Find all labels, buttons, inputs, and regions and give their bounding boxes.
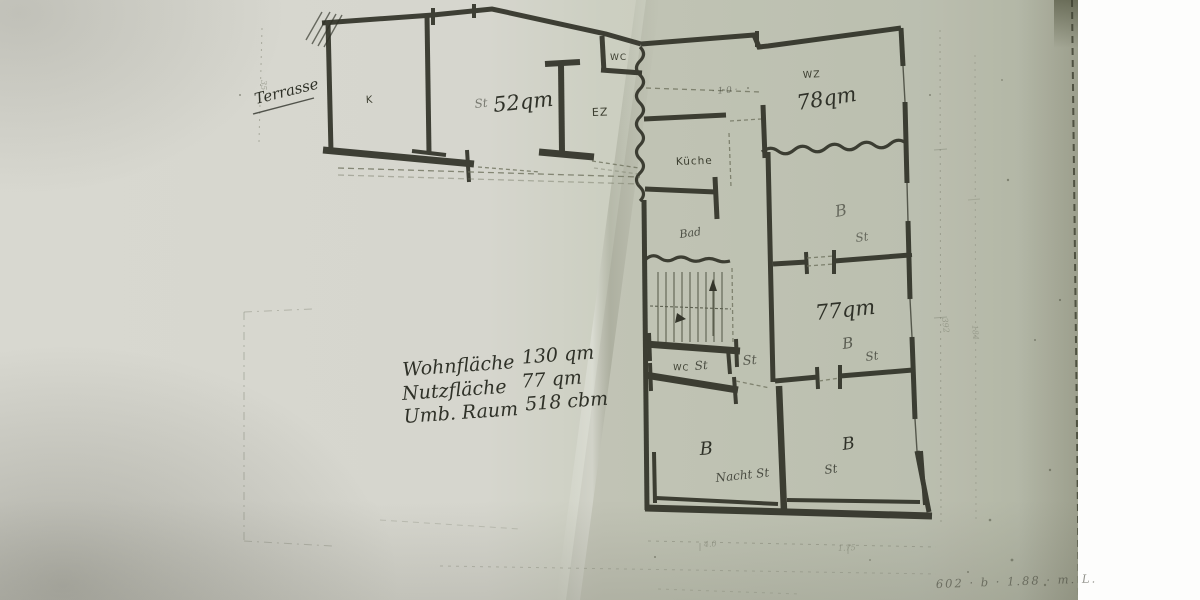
label-pencil-note: · 1·0 · bbox=[712, 85, 739, 97]
corner-shadow-bl bbox=[0, 300, 420, 600]
label-room-kueche: Küche bbox=[676, 155, 713, 168]
outer-wall-left bbox=[328, 22, 331, 152]
wall-k-divider bbox=[427, 15, 429, 153]
background-white bbox=[1078, 0, 1200, 600]
label-b-bottom-left: B bbox=[698, 438, 714, 460]
label-st-hall: St bbox=[742, 353, 758, 369]
label-st-bottom-right: St bbox=[823, 461, 838, 477]
dim-right-1: 392 bbox=[940, 317, 951, 333]
label-st-mid: St bbox=[854, 229, 869, 245]
floorplan-scan: K EZ WC WZ Küche WC Terrasse St 52qm 78q… bbox=[0, 0, 1200, 600]
corner-shadow-tl bbox=[0, 0, 380, 260]
corner-edge-tr bbox=[1054, 0, 1078, 48]
dim-bottom-1: 4.0 bbox=[703, 539, 717, 549]
label-st-wc: St bbox=[694, 358, 708, 373]
label-b-bottom-right: B bbox=[840, 433, 856, 455]
label-b-77: B bbox=[840, 334, 854, 353]
label-room-wz: WZ bbox=[803, 69, 821, 81]
label-room-wc-low: WC bbox=[673, 363, 690, 374]
label-st-77: St bbox=[864, 348, 879, 364]
floorplan-photo: K EZ WC WZ Küche WC Terrasse St 52qm 78q… bbox=[0, 0, 1200, 600]
label-room-ez: EZ bbox=[592, 105, 609, 119]
outer-wall-left-lower bbox=[644, 200, 647, 510]
dim-left: 35 bbox=[259, 80, 268, 90]
dim-right-2: 184 bbox=[970, 324, 980, 340]
summary-value-2: 77 qm bbox=[521, 366, 583, 392]
dim-bottom-2: 1.75 bbox=[838, 543, 856, 553]
label-st52-prefix: St bbox=[474, 96, 489, 111]
label-room-k: K bbox=[366, 95, 374, 106]
paper bbox=[0, 0, 1200, 600]
label-room-wc-top: WC bbox=[610, 53, 627, 63]
